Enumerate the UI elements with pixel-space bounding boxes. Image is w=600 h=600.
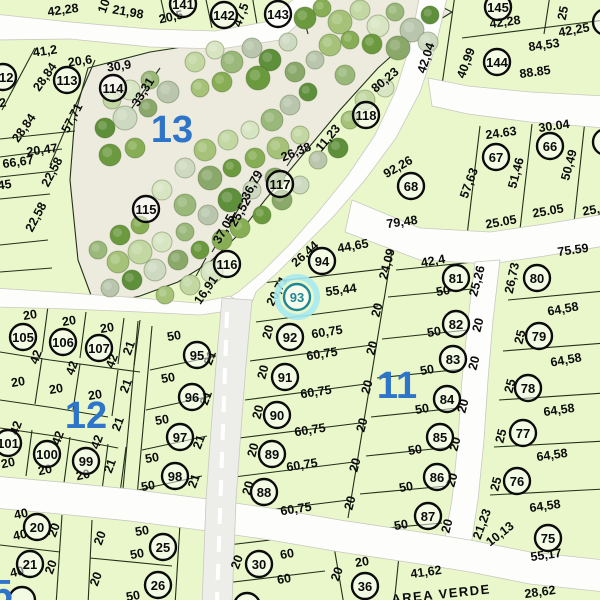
dimension-label: 50 <box>134 523 150 539</box>
lot-number: 76 <box>510 474 524 489</box>
lot-number: 81 <box>449 271 463 286</box>
lot-number: 92 <box>283 330 297 345</box>
lot-badge[interactable]: 115 <box>133 196 159 222</box>
dimension-label: 20 <box>99 320 115 336</box>
lot-badge[interactable]: 98 <box>162 463 188 489</box>
lot-number: 105 <box>12 330 34 345</box>
tree-highlight <box>102 147 112 157</box>
lot-badge[interactable]: 118 <box>353 102 379 128</box>
tree-highlight <box>221 133 230 142</box>
dimension-label: 20 <box>22 307 38 323</box>
lot-number: 77 <box>516 426 530 441</box>
selected-lot-number: 93 <box>290 290 304 305</box>
dimension-label: 50 <box>407 442 423 458</box>
lot-badge[interactable]: 107 <box>86 335 112 361</box>
tree-highlight <box>245 41 254 50</box>
lot-badge[interactable]: 100 <box>34 441 60 467</box>
dimension-label: 50 <box>419 362 435 378</box>
lot-badge[interactable]: 114 <box>100 75 126 101</box>
lot-badge[interactable]: 26 <box>145 572 171 598</box>
tree-highlight <box>222 192 233 203</box>
lot-badge[interactable]: 96 <box>179 384 205 410</box>
tree-highlight <box>204 264 214 274</box>
tree-highlight <box>201 208 210 217</box>
tree-highlight <box>183 278 192 287</box>
lot-badge[interactable]: 97 <box>167 424 193 450</box>
lot-number: 67 <box>489 150 503 165</box>
tree-highlight <box>147 262 157 272</box>
lot-badge[interactable]: 86 <box>424 464 450 490</box>
lot-badge[interactable]: 92 <box>277 324 303 350</box>
lot-number: 82 <box>449 317 463 332</box>
lot-number: 91 <box>278 370 292 385</box>
lot-badge[interactable]: 112 <box>0 64 16 90</box>
lot-badge[interactable]: 142 <box>211 2 237 28</box>
dimension-label: 50 <box>129 546 145 562</box>
lot-number: 98 <box>168 469 182 484</box>
lot-number: 107 <box>88 341 110 356</box>
dimension-label: 50 <box>393 517 409 533</box>
tree-highlight <box>244 124 252 132</box>
dimension-label: 20 <box>61 313 77 329</box>
tree-highlight <box>390 40 401 51</box>
block-number: 12 <box>65 395 107 437</box>
lot-number: 142 <box>213 8 235 23</box>
lot-badge[interactable]: 94 <box>309 248 335 274</box>
dimension-label: 50 <box>154 412 170 428</box>
tree-highlight <box>297 10 307 20</box>
tree-highlight <box>270 140 280 150</box>
lot-number: 83 <box>446 352 460 367</box>
lot-badge[interactable]: 66 <box>537 133 563 159</box>
tree-highlight <box>256 209 264 217</box>
dimension-label: 50 <box>160 370 176 386</box>
dimension-label: 25 <box>555 5 572 22</box>
tree-highlight <box>177 197 187 207</box>
lot-badge[interactable]: 141 <box>170 0 196 17</box>
tree-highlight <box>338 68 347 77</box>
tree-highlight <box>179 226 187 234</box>
lot-number: 68 <box>404 179 418 194</box>
tree-highlight <box>344 34 352 42</box>
dimension-label: 50 <box>140 478 156 494</box>
lot-badge[interactable]: 113 <box>54 67 80 93</box>
tree-highlight <box>294 129 302 137</box>
lot-number: 86 <box>430 470 444 485</box>
lot-number: 113 <box>57 73 78 88</box>
tree-highlight <box>159 289 167 297</box>
lot-badge[interactable]: 78 <box>515 375 541 401</box>
tree-highlight <box>283 98 292 107</box>
tree-highlight <box>404 22 415 33</box>
lot-number: 80 <box>530 271 544 286</box>
lot-number: 79 <box>532 329 546 344</box>
lot-badge[interactable]: 105 <box>10 324 36 350</box>
tree-highlight <box>92 244 100 252</box>
lot-number: 97 <box>173 430 187 445</box>
selected-lot-badge[interactable]: 93 <box>277 277 317 317</box>
lot-number: 94 <box>315 254 330 269</box>
tree-highlight <box>282 36 290 44</box>
tree-highlight <box>365 37 374 46</box>
lot-badge[interactable]: 85 <box>427 424 453 450</box>
lot-number: 84 <box>440 392 455 407</box>
tree-highlight <box>160 84 170 94</box>
tree-highlight <box>250 70 261 81</box>
dimension-label: 50 <box>426 324 442 340</box>
lot-number: 78 <box>521 381 535 396</box>
tree-highlight <box>309 54 317 62</box>
lot-badge[interactable]: 68 <box>398 173 424 199</box>
lot-badge[interactable]: 84 <box>434 386 460 412</box>
tree-highlight <box>194 82 202 90</box>
lot-badge[interactable]: 117 <box>267 171 293 197</box>
lot-badge[interactable]: 95 <box>184 342 210 368</box>
tree-highlight <box>155 183 164 192</box>
lot-badge[interactable]: 82 <box>443 311 469 337</box>
tree-highlight <box>370 18 380 28</box>
lot-number: 21 <box>23 557 37 572</box>
lot-number: 90 <box>270 408 284 423</box>
lot-badge[interactable]: 81 <box>443 265 469 291</box>
lot-number: 114 <box>103 81 125 96</box>
lot-badge[interactable]: 20 <box>24 514 50 540</box>
lot-number: 89 <box>265 447 279 462</box>
tree-highlight <box>264 112 274 122</box>
lot-number: 99 <box>79 454 93 469</box>
block-number: 11 <box>377 365 417 407</box>
lot-badge[interactable]: 144 <box>484 49 510 75</box>
lot-badge[interactable]: 143 <box>265 1 291 27</box>
tree-highlight <box>104 282 112 290</box>
tree-highlight <box>132 244 143 255</box>
lot-number: 36 <box>358 579 372 594</box>
lot-number: 145 <box>487 0 509 15</box>
tree-highlight <box>316 2 324 10</box>
lot-number: 88 <box>257 485 271 500</box>
tree-highlight <box>194 244 202 252</box>
tree-highlight <box>209 44 217 52</box>
lot-number: 112 <box>0 70 13 85</box>
tree-highlight <box>188 55 197 64</box>
tree-highlight <box>215 75 224 84</box>
lot-number: 117 <box>270 177 291 192</box>
tree-highlight <box>226 162 234 170</box>
lot-badge[interactable]: 76 <box>504 468 530 494</box>
lot-number: 141 <box>172 0 194 12</box>
tree-highlight <box>155 235 164 244</box>
lot-badge[interactable]: 106 <box>50 329 76 355</box>
lot-number: 101 <box>0 436 19 451</box>
tree-highlight <box>98 121 107 130</box>
lot-badge[interactable]: 83 <box>440 346 466 372</box>
tree-highlight <box>312 154 320 162</box>
lot-badge[interactable]: 77 <box>510 420 536 446</box>
tree-highlight <box>117 110 128 121</box>
tree-highlight <box>202 170 213 181</box>
parcel-map: 42,2821,981020,547,541,220,630,928,8457,… <box>0 0 600 600</box>
tree-highlight <box>389 6 397 14</box>
lot-badge[interactable]: 87 <box>415 503 441 529</box>
lot-badge[interactable]: 80 <box>524 265 550 291</box>
tree-highlight <box>171 253 180 262</box>
map-canvas: 42,2821,981020,547,541,220,630,928,8457,… <box>0 0 600 600</box>
tree-highlight <box>332 14 343 25</box>
tree-highlight <box>344 114 352 122</box>
lot-number: 95 <box>190 348 204 363</box>
lot-number: 143 <box>267 7 289 22</box>
dimension-label: 50 <box>398 479 414 495</box>
lot-badge[interactable]: 30 <box>246 551 272 577</box>
lot-badge[interactable]: 67 <box>483 144 509 170</box>
dimension-label: 50 <box>144 450 160 466</box>
dimension-label: 60 <box>279 546 295 562</box>
lot-badge[interactable]: 75 <box>535 525 561 551</box>
lot-number: 87 <box>421 509 435 524</box>
tree-highlight <box>224 54 234 64</box>
lot-number: 85 <box>433 430 447 445</box>
lot-number: 26 <box>151 578 165 593</box>
lot-badge[interactable]: 145 <box>485 0 511 20</box>
dimension-label: 20 <box>10 374 26 390</box>
lot-number: 66 <box>543 139 557 154</box>
dimension-label: 20 <box>354 554 370 570</box>
lot-badge[interactable]: 21 <box>17 551 43 577</box>
lot-badge[interactable]: 36 <box>352 573 378 599</box>
lot-number: 96 <box>185 390 199 405</box>
dimension-label: 50 <box>125 588 141 600</box>
lot-number: 118 <box>356 108 377 123</box>
tree-highlight <box>248 151 257 160</box>
lot-badge[interactable]: 99 <box>73 448 99 474</box>
tree-highlight <box>128 141 137 150</box>
dimension-label: 20 <box>48 381 64 397</box>
tree-highlight <box>125 273 134 282</box>
tree-highlight <box>294 179 302 187</box>
lot-number: 115 <box>136 202 157 217</box>
lot-number: 20 <box>30 520 44 535</box>
tree-highlight <box>424 9 432 17</box>
lot-badge[interactable]: 88 <box>251 479 277 505</box>
tree-highlight <box>113 228 122 237</box>
lot-badge[interactable]: 116 <box>214 251 240 277</box>
lot-number: 106 <box>52 335 74 350</box>
lot-badge[interactable]: 101 <box>0 430 21 456</box>
block-number: 5 <box>0 573 13 600</box>
lot-number: 30 <box>252 557 266 572</box>
tree-highlight <box>358 93 367 102</box>
lot-number: 75 <box>541 531 555 546</box>
dimension-label: 50 <box>166 328 182 344</box>
tree-highlight <box>288 65 297 74</box>
tree-highlight <box>353 3 362 12</box>
dimension-label: 60 <box>276 571 292 587</box>
tree-highlight <box>110 254 120 264</box>
lot-number: 100 <box>36 447 58 462</box>
lot-number: 25 <box>156 540 170 555</box>
tree-highlight <box>178 161 187 170</box>
lot-badge[interactable]: 90 <box>264 402 290 428</box>
lot-badge[interactable]: 91 <box>272 364 298 390</box>
block-number: 13 <box>151 109 193 151</box>
tree-highlight <box>302 86 310 94</box>
lot-badge[interactable]: 79 <box>526 323 552 349</box>
tree-highlight <box>262 52 272 62</box>
lot-number: 116 <box>217 257 238 272</box>
tree-highlight <box>197 142 207 152</box>
lot-number: 144 <box>486 55 508 70</box>
lot-badge[interactable]: 25 <box>150 534 176 560</box>
lot-badge[interactable]: 89 <box>259 441 285 467</box>
tree-highlight <box>322 37 332 47</box>
